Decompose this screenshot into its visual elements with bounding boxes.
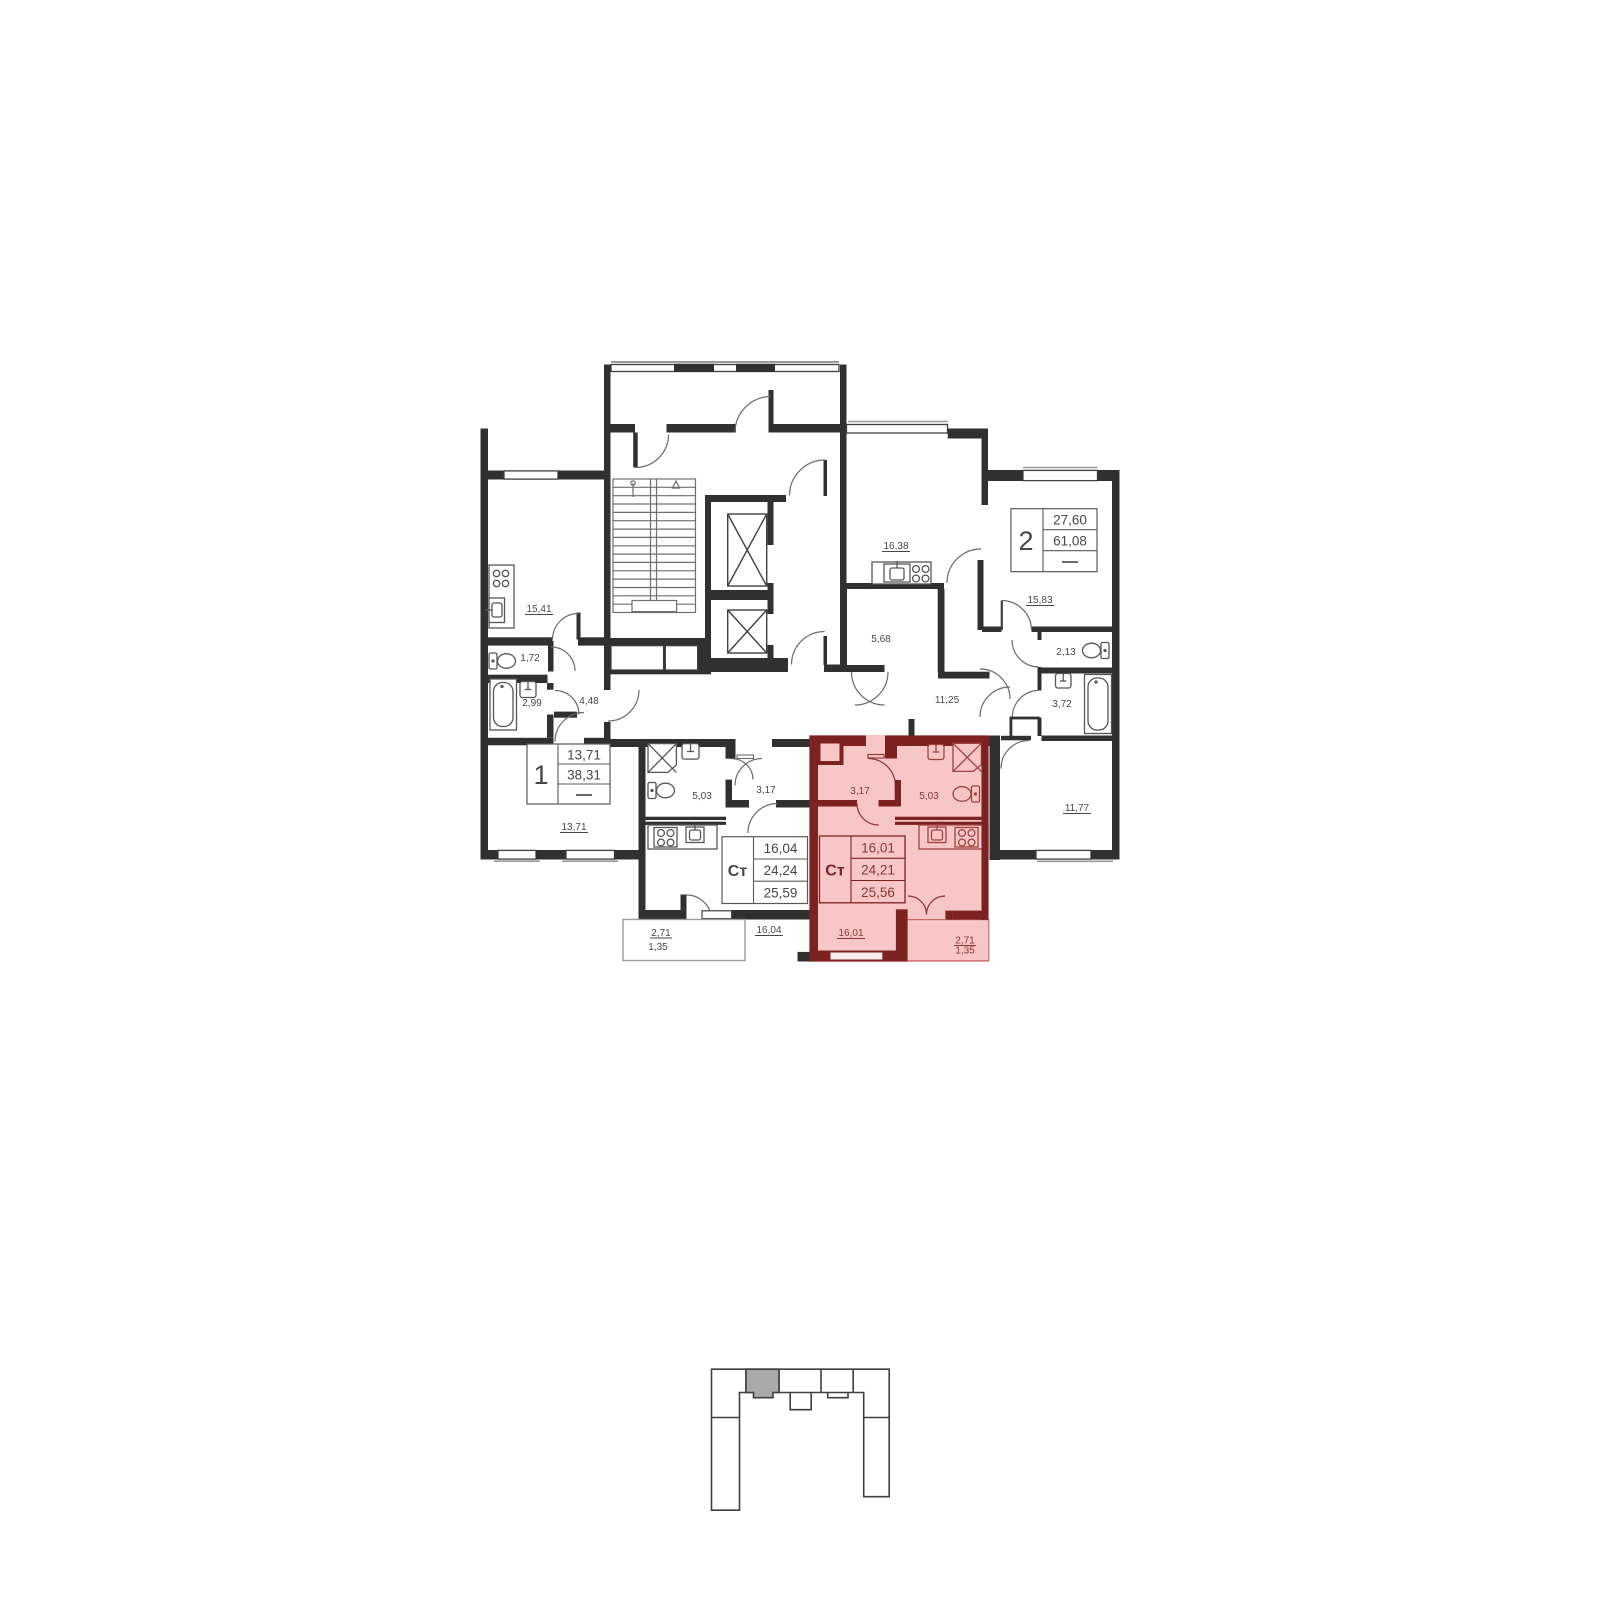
svg-text:16,04: 16,04 <box>756 925 781 936</box>
svg-text:3,17: 3,17 <box>850 786 870 797</box>
svg-text:4,48: 4,48 <box>579 696 599 707</box>
svg-text:Ст: Ст <box>728 863 748 880</box>
svg-text:27,60: 27,60 <box>1053 513 1087 528</box>
svg-text:Ст: Ст <box>825 863 845 880</box>
svg-text:2,71: 2,71 <box>651 928 671 939</box>
svg-text:24,21: 24,21 <box>861 863 895 878</box>
svg-text:11,25: 11,25 <box>935 695 960 706</box>
svg-text:15,41: 15,41 <box>526 604 551 615</box>
svg-text:2: 2 <box>1018 526 1033 556</box>
svg-text:5,68: 5,68 <box>871 634 891 645</box>
svg-text:16,04: 16,04 <box>764 841 798 856</box>
svg-text:1: 1 <box>533 760 548 790</box>
svg-text:1,35: 1,35 <box>648 942 668 953</box>
svg-text:1,35: 1,35 <box>955 946 975 957</box>
svg-text:16,01: 16,01 <box>838 928 863 939</box>
svg-text:2,99: 2,99 <box>522 698 542 709</box>
svg-text:5,03: 5,03 <box>919 791 939 802</box>
svg-text:25,56: 25,56 <box>861 885 895 900</box>
svg-text:25,59: 25,59 <box>764 886 798 901</box>
svg-text:3,17: 3,17 <box>756 785 776 796</box>
svg-text:61,08: 61,08 <box>1053 534 1087 549</box>
svg-text:5,03: 5,03 <box>692 791 712 802</box>
svg-text:38,31: 38,31 <box>567 768 601 783</box>
svg-text:15,83: 15,83 <box>1027 595 1052 606</box>
svg-text:13,71: 13,71 <box>561 822 586 833</box>
svg-text:16,01: 16,01 <box>861 840 895 855</box>
svg-text:13,71: 13,71 <box>567 748 601 763</box>
svg-text:2,13: 2,13 <box>1056 647 1076 658</box>
svg-text:11,77: 11,77 <box>1065 803 1090 814</box>
svg-text:16,38: 16,38 <box>883 541 908 552</box>
svg-text:24,24: 24,24 <box>764 863 798 878</box>
svg-text:1,72: 1,72 <box>520 653 540 664</box>
svg-text:3,72: 3,72 <box>1052 699 1072 710</box>
